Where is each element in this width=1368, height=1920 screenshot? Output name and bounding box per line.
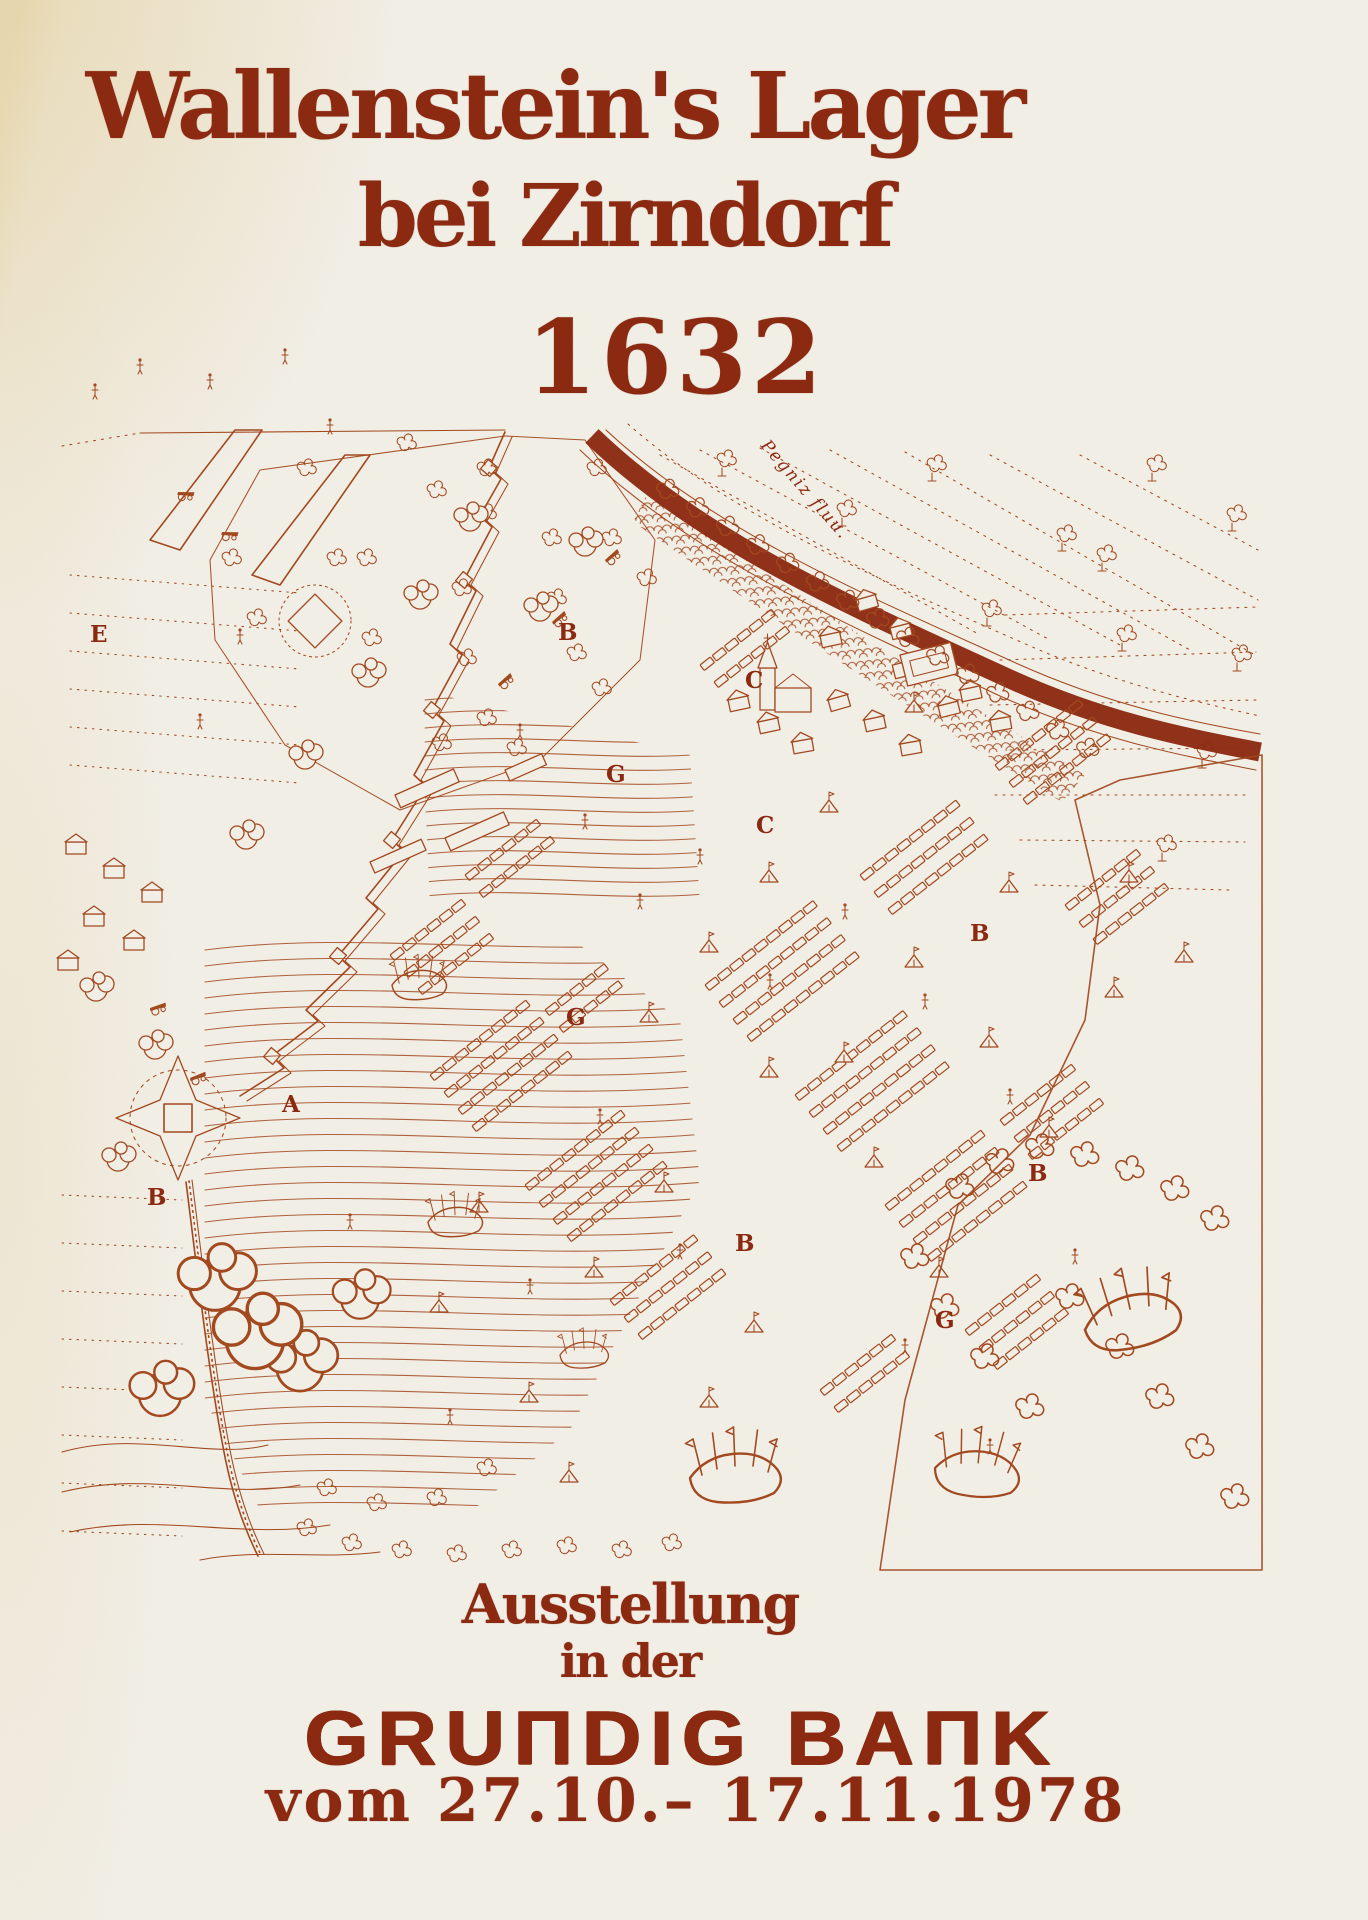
title-year: 1632	[0, 298, 1360, 418]
footer-ausstellung: Ausstellung	[0, 1572, 1314, 1636]
title-line-2: bei Zirndorf	[0, 166, 1308, 267]
title-line-1: Wallenstein's Lager	[0, 52, 1238, 160]
pegnitz-river: Pegniz fluu.	[580, 424, 1260, 770]
hillside-contours	[205, 942, 705, 1510]
map-letter: B	[970, 920, 989, 947]
map-letter: G	[935, 1307, 955, 1334]
map-letter: B	[735, 1230, 754, 1257]
map-letter: G	[606, 761, 626, 788]
map-letter: C	[745, 667, 763, 694]
map-letter: B	[147, 1184, 166, 1211]
field-hatching	[62, 448, 1258, 1536]
map-letter: B	[558, 619, 577, 646]
poster-page: Pegniz fluu.	[0, 0, 1368, 1920]
pike-formations	[389, 954, 1185, 1502]
footer-in-der: in der	[0, 1634, 1314, 1688]
river-label: Pegniz fluu.	[756, 435, 854, 544]
glacis-contours	[425, 697, 705, 897]
map-letter: G	[566, 1004, 586, 1031]
footer-dates: vom 27.10.– 17.11.1978	[12, 1766, 1368, 1836]
forest-hill-bottom-right	[880, 755, 1262, 1570]
map-letter: B	[1028, 1160, 1047, 1187]
map-letter: C	[756, 812, 774, 839]
map-letter: A	[281, 1091, 301, 1118]
map-letter: E	[90, 621, 108, 648]
